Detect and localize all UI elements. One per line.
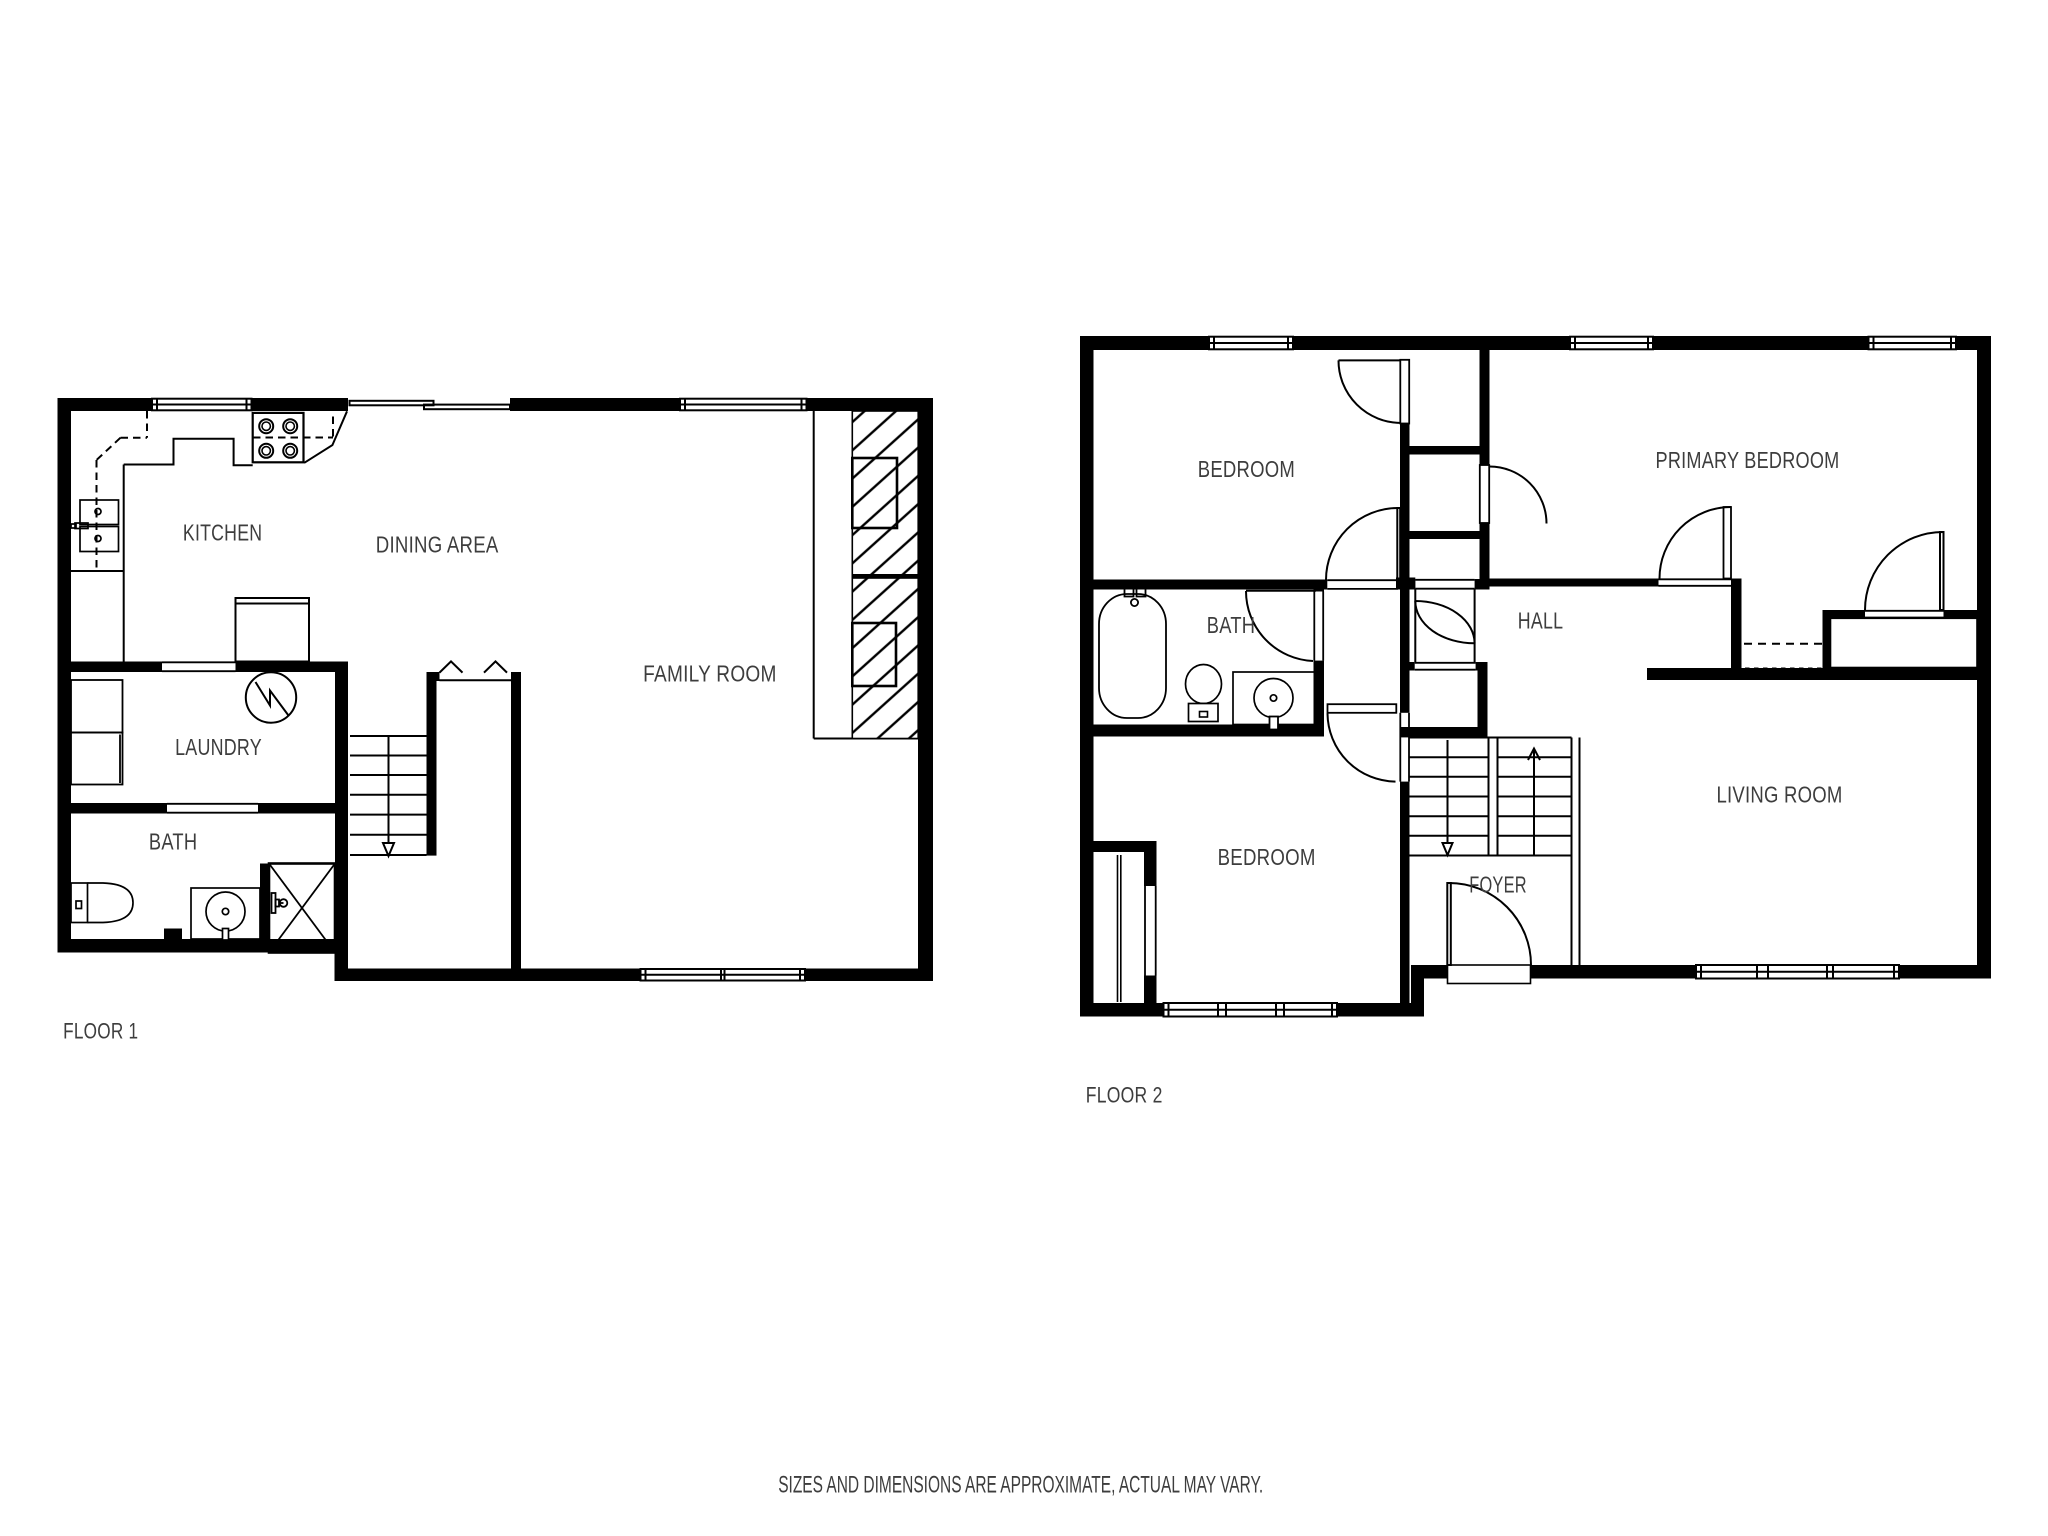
svg-text:BATH: BATH — [149, 829, 197, 855]
svg-text:KITCHEN: KITCHEN — [183, 520, 262, 546]
svg-text:FAMILY ROOM: FAMILY ROOM — [643, 661, 777, 687]
svg-text:BATH: BATH — [1207, 612, 1255, 638]
svg-text:FOYER: FOYER — [1469, 871, 1527, 897]
svg-text:LIVING ROOM: LIVING ROOM — [1716, 781, 1842, 807]
svg-text:BEDROOM: BEDROOM — [1218, 844, 1316, 870]
svg-text:LAUNDRY: LAUNDRY — [175, 734, 262, 760]
svg-text:BEDROOM: BEDROOM — [1198, 456, 1295, 482]
svg-text:PRIMARY BEDROOM: PRIMARY BEDROOM — [1656, 447, 1840, 473]
svg-text:SIZES AND DIMENSIONS ARE APPRO: SIZES AND DIMENSIONS ARE APPROXIMATE, AC… — [778, 1471, 1263, 1498]
svg-text:FLOOR 2: FLOOR 2 — [1086, 1082, 1163, 1107]
svg-text:DINING AREA: DINING AREA — [376, 531, 499, 557]
svg-text:HALL: HALL — [1518, 608, 1563, 634]
svg-text:FLOOR 1: FLOOR 1 — [63, 1018, 138, 1043]
